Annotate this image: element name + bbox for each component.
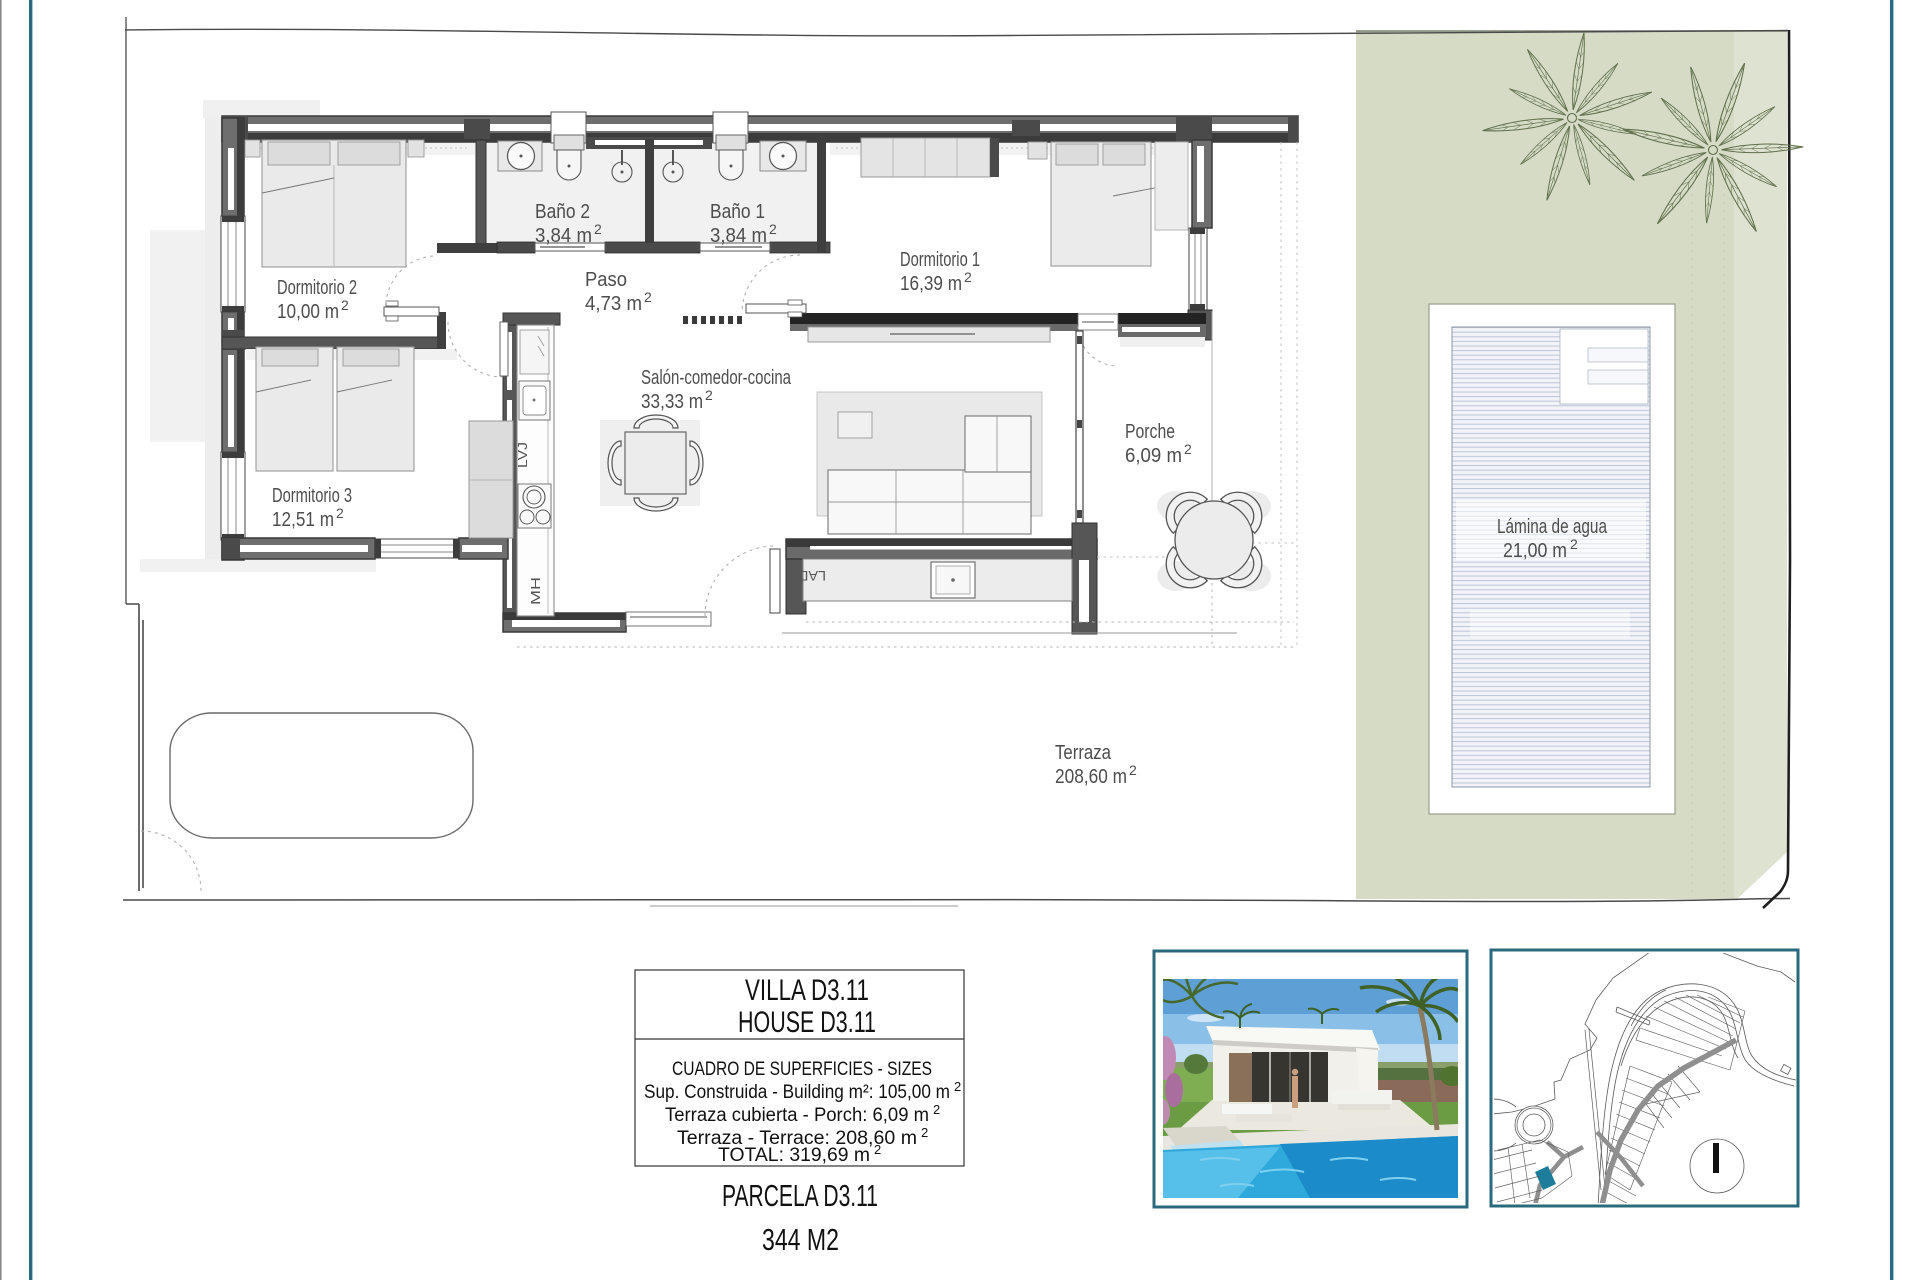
svg-text:10,00 m: 10,00 m bbox=[277, 301, 339, 323]
svg-text:PARCELA D3.11: PARCELA D3.11 bbox=[722, 1178, 878, 1213]
svg-text:3,84 m: 3,84 m bbox=[535, 225, 592, 247]
svg-text:Porche: Porche bbox=[1125, 421, 1175, 443]
svg-text:21,00 m: 21,00 m bbox=[1503, 540, 1567, 562]
svg-text:12,51 m: 12,51 m bbox=[272, 509, 334, 531]
svg-text:6,09 m: 6,09 m bbox=[1125, 445, 1182, 467]
svg-text:33,33 m: 33,33 m bbox=[641, 391, 703, 413]
svg-text:2: 2 bbox=[964, 269, 972, 285]
svg-text:2: 2 bbox=[769, 221, 777, 237]
svg-text:LVJ: LVJ bbox=[515, 442, 530, 468]
svg-text:Dormitorio 3: Dormitorio 3 bbox=[272, 485, 352, 507]
svg-text:HOUSE D3.11: HOUSE D3.11 bbox=[738, 1006, 876, 1039]
svg-text:344 M2: 344 M2 bbox=[762, 1222, 839, 1257]
svg-text:2: 2 bbox=[594, 221, 602, 237]
svg-text:MH: MH bbox=[528, 577, 543, 605]
svg-text:2: 2 bbox=[1129, 762, 1137, 778]
svg-text:16,39 m: 16,39 m bbox=[900, 273, 962, 295]
svg-text:2: 2 bbox=[1184, 441, 1192, 457]
svg-text:VILLA D3.11: VILLA D3.11 bbox=[745, 974, 869, 1007]
svg-text:Sup. Construida - Building m: Sup. Construida - Building m²: 105,00 m bbox=[644, 1082, 950, 1103]
svg-text:2: 2 bbox=[644, 289, 652, 305]
svg-text:Terraza: Terraza bbox=[1055, 742, 1112, 764]
svg-text:208,60 m: 208,60 m bbox=[1055, 766, 1127, 788]
svg-text:Dormitorio 1: Dormitorio 1 bbox=[900, 249, 980, 271]
svg-text:3,84 m: 3,84 m bbox=[710, 225, 767, 247]
svg-text:Baño 2: Baño 2 bbox=[535, 201, 590, 223]
svg-text:LAD: LAD bbox=[798, 568, 826, 584]
svg-text:Dormitorio 2: Dormitorio 2 bbox=[277, 277, 357, 299]
svg-text:2: 2 bbox=[336, 505, 344, 521]
svg-text:CUADRO DE SUPERFICIES - SIZE: CUADRO DE SUPERFICIES - SIZES bbox=[672, 1059, 932, 1080]
svg-text:2: 2 bbox=[1570, 536, 1578, 552]
svg-text:2: 2 bbox=[341, 297, 349, 313]
svg-text:TOTAL: 319,69 m: TOTAL: 319,69 m bbox=[718, 1145, 870, 1166]
svg-text:2: 2 bbox=[874, 1142, 881, 1157]
svg-text:Paso: Paso bbox=[585, 269, 627, 291]
svg-text:Baño 1: Baño 1 bbox=[710, 201, 765, 223]
svg-text:Terraza cubierta - Porch: 6: Terraza cubierta - Porch: 6,09 m bbox=[665, 1105, 929, 1126]
svg-text:2: 2 bbox=[705, 387, 713, 403]
svg-text:2: 2 bbox=[954, 1079, 961, 1094]
svg-text:2: 2 bbox=[921, 1125, 928, 1140]
svg-text:4,73 m: 4,73 m bbox=[585, 293, 642, 315]
svg-text:Salón-comedor-cocina: Salón-comedor-cocina bbox=[641, 367, 792, 389]
svg-text:Lámina de agua: Lámina de agua bbox=[1497, 516, 1608, 538]
svg-text:2: 2 bbox=[933, 1102, 940, 1117]
